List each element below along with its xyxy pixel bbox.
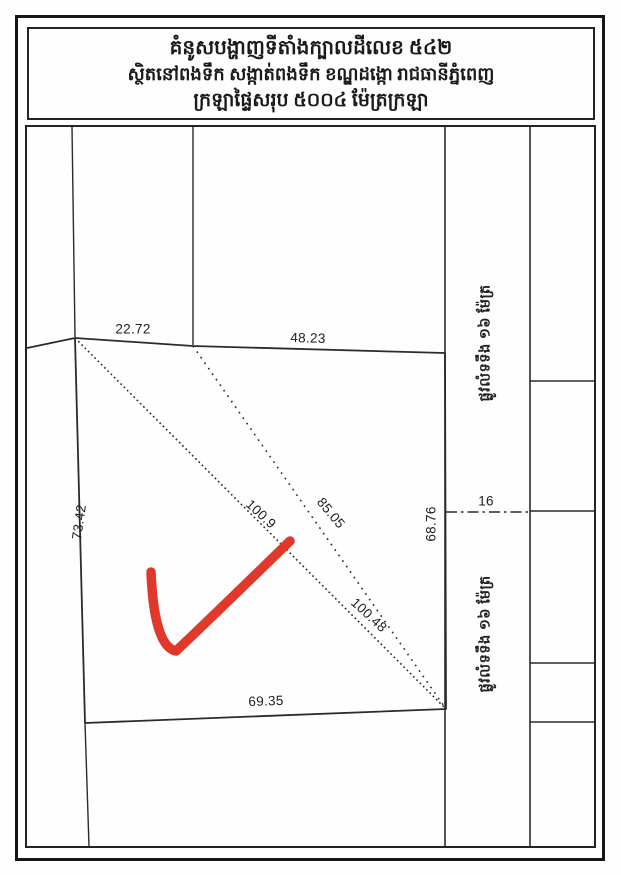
cadastral-sheet: គំនូសបង្ហាញទីតាំងក្បាលដីលេខ ៥៤២ ស្ថិតនៅព… (0, 0, 621, 875)
diagonal-dotted-sparse (193, 346, 446, 709)
red-check-mark (151, 541, 290, 651)
dimension-label-right-edge: 68.76 (424, 506, 439, 541)
road-name-label-lower: ផ្លូវលំទទឹង ១៦ ម៉ែត្រ (477, 575, 498, 692)
left-edge-extension (85, 723, 89, 846)
dimension-label-bottom-edge: 69.35 (248, 693, 284, 709)
dimension-label-top-right: 48.23 (290, 330, 326, 346)
parcel-outline (75, 338, 446, 723)
top-edge-extension (27, 338, 75, 348)
boundary-line-upper-left (72, 127, 75, 337)
dimension-label-top-left: 22.72 (115, 322, 150, 337)
road-name-label-upper: ផ្លូវលំទទឹង ១៦ ម៉ែត្រ (477, 284, 498, 401)
survey-diagram-canvas (0, 0, 621, 875)
dimension-label-road-width: 16 (478, 494, 494, 509)
diagram-border (26, 126, 595, 847)
